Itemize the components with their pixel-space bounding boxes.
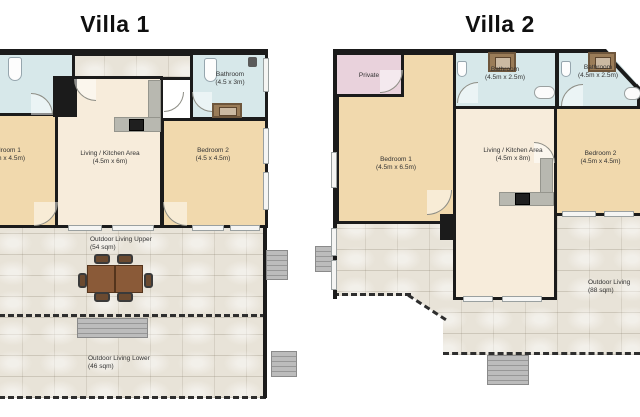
villa1-vanity-basin <box>219 107 237 116</box>
villa1-stairs-middle <box>77 318 148 338</box>
villa1-living-window-left <box>68 225 102 231</box>
villa2-terrace-bottom-edge <box>443 352 640 355</box>
villa2-bedroom2-label: Bedroom 2(4.5m x 4.5m) <box>558 150 640 165</box>
dining-table-right <box>115 265 143 293</box>
villa1-stairs-lower-right <box>271 351 297 377</box>
villa1-top-wall <box>0 49 268 53</box>
villa1-shower-icon <box>248 57 257 67</box>
villa1-vanity <box>212 103 242 118</box>
villa1-bedroom2-door <box>164 92 184 112</box>
villa2-bedroom2-window-left <box>562 211 596 217</box>
villa2-bedroom2-window-right <box>604 211 634 217</box>
dining-table-left <box>87 265 115 293</box>
villa2-stairs-bottom <box>487 355 529 385</box>
villa1-bedroom2-window-bottom-right <box>230 225 260 231</box>
chair-top-left <box>94 254 110 264</box>
villa2-outdoor-label: Outdoor Living(88 sqm) <box>588 279 640 294</box>
villa2-top-wall <box>333 49 606 53</box>
villa1-terrace-bottom-edge <box>0 396 266 399</box>
chair-bottom-right <box>117 292 133 302</box>
villa1-living-window-right <box>112 225 154 231</box>
villa1-stairs-upper-right <box>266 250 288 280</box>
villa1-stove <box>129 119 144 131</box>
villa2-living-window-left <box>463 296 493 302</box>
villa2-stove <box>515 193 530 205</box>
villa2-private-label: Private <box>338 72 400 80</box>
villa2-title: Villa 2 <box>420 11 580 38</box>
villa2-patio-rail-upper <box>331 228 337 256</box>
villa1-terrace-divider <box>0 314 266 317</box>
villa1-toilet-left <box>8 57 22 81</box>
chair-left <box>78 273 87 288</box>
villa1-bathroom-label: Bathroom(4.5 x 3m) <box>195 71 265 86</box>
villa1-bedroom1-label: Bedroom 1(4.5m x 4.5m) <box>0 147 55 162</box>
villa2-bedroom1-label: Bedroom 1(4.5m x 6.5m) <box>351 156 441 171</box>
villa2-bathroom1-label: Bathroom(4.5m x 2.5m) <box>465 66 545 81</box>
villa1-title: Villa 1 <box>35 11 195 38</box>
villa1-bedroom2-window-bottom-left <box>192 225 224 231</box>
villa2-wall-jog <box>440 214 453 240</box>
villa1-bedroom2-window-upper <box>263 128 269 164</box>
villa2-patio-rail-lower <box>331 260 337 290</box>
villa2-bathroom2-label: Bathroom(4.5m x 2.5m) <box>563 64 633 79</box>
villa1-living-label: Living / Kitchen Area(4.5m x 6m) <box>65 150 155 165</box>
villa1-bedroom2-label: Bedroom 2(4.5 x 4.5m) <box>168 147 258 162</box>
villa2-bedroom1-window <box>331 152 337 188</box>
villa2-terrace-left-edge <box>333 293 411 296</box>
villa2-living-label: Living / Kitchen Area(4.5m x 8m) <box>468 147 558 162</box>
chair-right <box>144 273 153 288</box>
villa1-outdoor-upper-label: Outdoor Living Upper(54 sqm) <box>90 236 180 251</box>
villa2-bathroom1-basin <box>534 86 555 99</box>
chair-bottom-left <box>94 292 110 302</box>
villa2-bathroom2-basin <box>624 87 640 100</box>
villa1-outdoor-lower-label: Outdoor Living Lower(46 sqm) <box>88 355 178 370</box>
villa1-bedroom2-window-lower <box>263 172 269 210</box>
villa2-living-window-right <box>502 296 542 302</box>
floorplan-canvas: Villa 1 Bathroom(4.5 x 3m) <box>0 0 640 417</box>
chair-top-right <box>117 254 133 264</box>
